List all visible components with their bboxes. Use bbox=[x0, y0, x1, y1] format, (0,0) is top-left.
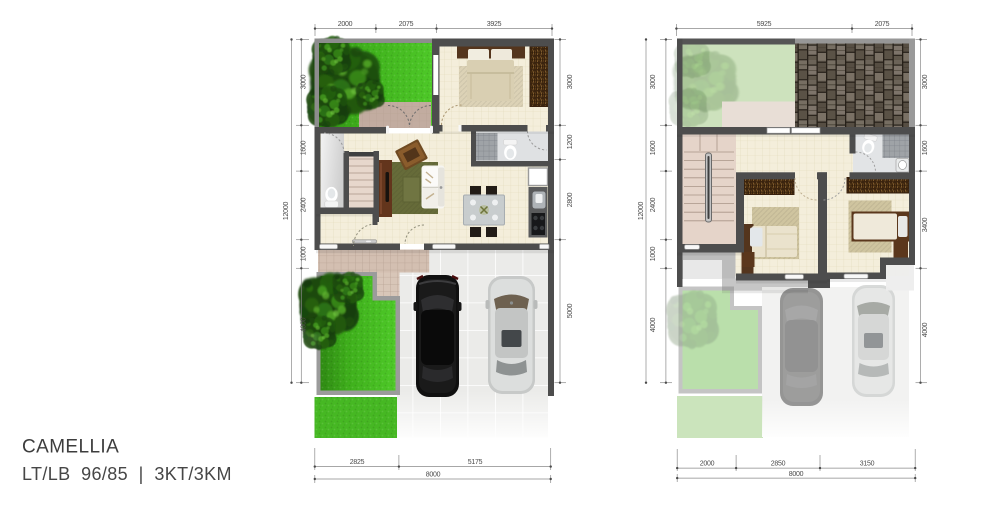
svg-text:1000: 1000 bbox=[650, 246, 657, 261]
svg-text:2400: 2400 bbox=[301, 197, 308, 212]
svg-text:8000: 8000 bbox=[426, 472, 441, 479]
svg-text:3000: 3000 bbox=[650, 74, 657, 89]
svg-text:3400: 3400 bbox=[922, 217, 929, 232]
svg-text:3000: 3000 bbox=[567, 74, 574, 89]
svg-text:CAMELLIA: CAMELLIA bbox=[22, 437, 119, 458]
svg-text:1600: 1600 bbox=[922, 140, 929, 155]
svg-text:1200: 1200 bbox=[567, 134, 574, 149]
svg-text:2075: 2075 bbox=[875, 21, 890, 28]
svg-text:LT/LB 96/85 | 3KT/3KM: LT/LB 96/85 | 3KT/3KM bbox=[22, 464, 232, 484]
svg-text:2825: 2825 bbox=[350, 459, 365, 466]
svg-text:4000: 4000 bbox=[650, 317, 657, 332]
svg-text:2000: 2000 bbox=[700, 461, 715, 468]
svg-text:1000: 1000 bbox=[301, 246, 308, 261]
svg-text:3000: 3000 bbox=[922, 74, 929, 89]
svg-text:2400: 2400 bbox=[650, 197, 657, 212]
svg-text:2850: 2850 bbox=[771, 461, 786, 468]
svg-text:4000: 4000 bbox=[301, 317, 308, 332]
svg-text:1600: 1600 bbox=[301, 140, 308, 155]
svg-text:5925: 5925 bbox=[757, 21, 772, 28]
svg-text:3925: 3925 bbox=[487, 21, 502, 28]
svg-text:3150: 3150 bbox=[860, 461, 875, 468]
svg-text:2000: 2000 bbox=[338, 21, 353, 28]
svg-text:3000: 3000 bbox=[301, 74, 308, 89]
svg-text:2800: 2800 bbox=[567, 192, 574, 207]
svg-text:12000: 12000 bbox=[283, 202, 290, 221]
svg-text:8000: 8000 bbox=[789, 471, 804, 478]
svg-text:4000: 4000 bbox=[922, 322, 929, 337]
svg-text:5000: 5000 bbox=[567, 303, 574, 318]
svg-text:2075: 2075 bbox=[399, 21, 414, 28]
svg-text:12000: 12000 bbox=[638, 202, 645, 221]
svg-text:1600: 1600 bbox=[650, 140, 657, 155]
svg-text:5175: 5175 bbox=[468, 459, 483, 466]
